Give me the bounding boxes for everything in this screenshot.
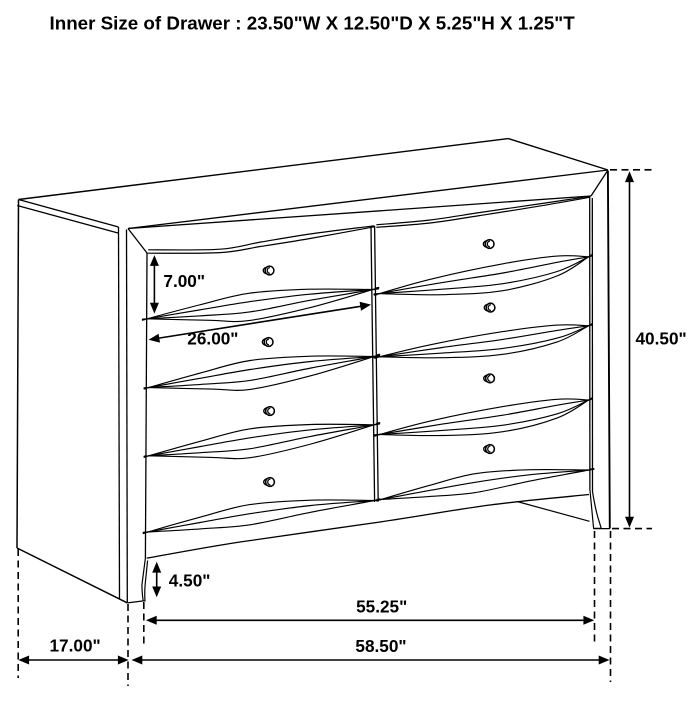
svg-text:58.50": 58.50" xyxy=(355,636,406,656)
svg-text:7.00": 7.00" xyxy=(163,271,205,291)
svg-text:26.00": 26.00" xyxy=(187,329,238,349)
svg-text:40.50": 40.50" xyxy=(636,329,687,349)
svg-text:55.25": 55.25" xyxy=(356,597,407,617)
svg-text:4.50": 4.50" xyxy=(169,571,211,591)
svg-text:17.00": 17.00" xyxy=(50,636,101,656)
svg-text:Inner Size of Drawer : 23.50"W: Inner Size of Drawer : 23.50"W X 12.50"D… xyxy=(50,13,576,34)
